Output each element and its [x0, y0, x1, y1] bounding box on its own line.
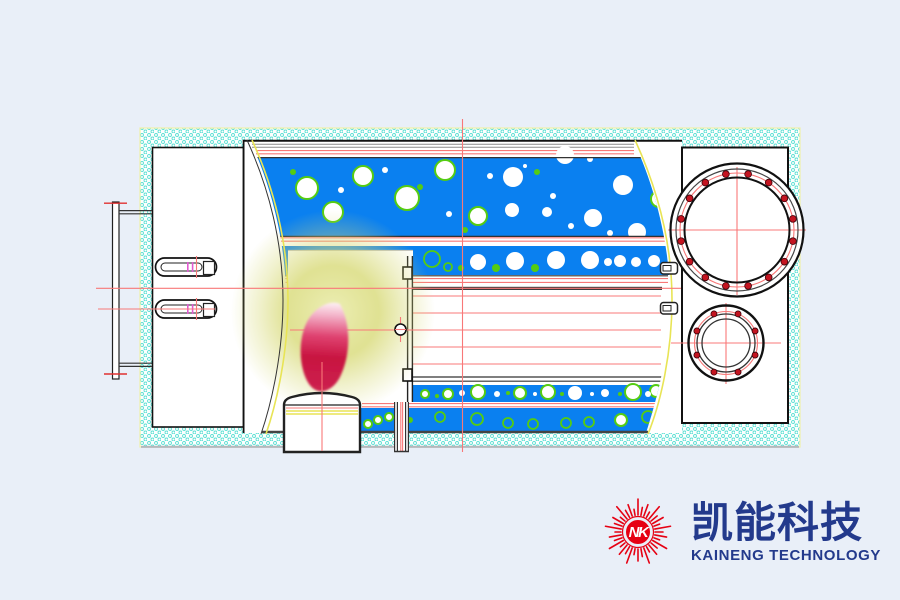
drain-pipe [394, 402, 409, 452]
kaineng-logo: NK 凯能科技 KAINENG TECHNOLOGY [598, 492, 881, 572]
burner-housing [284, 392, 360, 452]
company-name-english: KAINENG TECHNOLOGY [691, 547, 881, 565]
manhole-flange-large [668, 164, 806, 297]
front-casing-panel [153, 148, 244, 428]
nk-starburst-icon: NK [598, 492, 678, 572]
sootblower-lance-upper [156, 256, 217, 278]
nk-monogram: NK [629, 524, 650, 541]
company-name-chinese: 凯能科技 [691, 500, 881, 546]
inlet-flange-plate [113, 202, 120, 379]
